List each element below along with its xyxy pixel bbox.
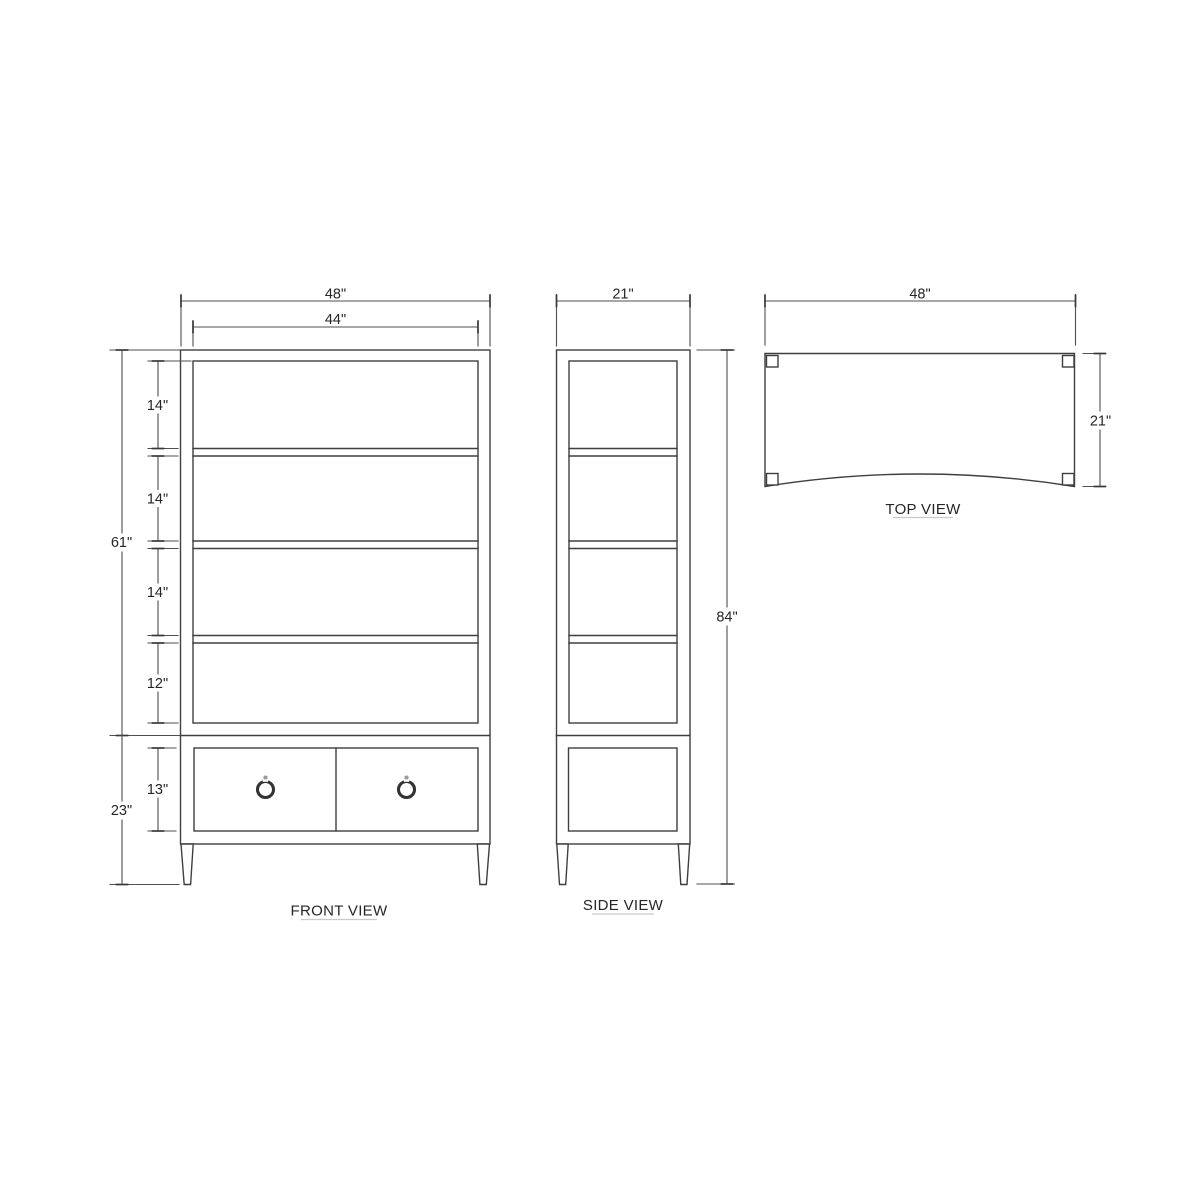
front-outer-frame: [181, 350, 491, 844]
dim-label-front-overall-width: 48": [325, 287, 346, 303]
drawer-pull-right-icon: [399, 776, 415, 798]
dim-label-front-shelf-4: 12": [147, 676, 168, 692]
dim-label-front-base-height: 23": [111, 803, 132, 819]
front-shelf-opening: [193, 361, 478, 723]
side-right-leg: [678, 844, 689, 885]
dim-label-front-shelf-2: 14": [147, 492, 168, 508]
top-view-dimensions: 48" 21": [765, 287, 1116, 487]
side-outer-frame: [557, 350, 691, 844]
front-left-leg: [181, 844, 193, 885]
dim-label-front-shelf-3: 14": [147, 585, 168, 601]
top-leg-post-bottom-right: [1063, 474, 1075, 486]
top-view-geometry: [765, 354, 1075, 487]
side-left-leg: [557, 844, 568, 885]
side-base-panel: [569, 748, 678, 831]
side-view-geometry: [557, 350, 691, 885]
dim-label-front-opening-width: 44": [325, 312, 346, 328]
front-right-leg: [477, 844, 489, 885]
top-leg-post-bottom-left: [767, 474, 779, 486]
top-view: 48" 21" TOP VIEW: [765, 287, 1116, 519]
top-outline-curved-front: [765, 354, 1075, 487]
dim-label-side-overall-height: 84": [716, 610, 737, 626]
dim-label-front-drawer-height: 13": [147, 782, 168, 798]
top-leg-post-top-right: [1063, 356, 1075, 368]
dim-label-front-shelf-1: 14": [147, 398, 168, 414]
front-view-label: FRONT VIEW: [291, 903, 388, 920]
front-view-geometry: [181, 350, 491, 885]
top-leg-post-top-left: [767, 356, 779, 368]
side-view-dimensions: 21" 84": [557, 287, 743, 885]
dim-label-top-depth: 21": [1090, 414, 1111, 430]
dim-label-front-upper-height: 61": [111, 535, 132, 551]
side-view: 21" 84" SIDE VIEW: [557, 287, 743, 915]
side-view-label: SIDE VIEW: [583, 897, 664, 914]
top-view-label: TOP VIEW: [885, 501, 961, 518]
drawing-canvas: 48" 44" 61": [0, 0, 1200, 1200]
dim-label-top-width: 48": [909, 287, 930, 303]
drawer-pull-left-icon: [258, 776, 274, 798]
front-view-dimensions: 48" 44" 61": [106, 287, 490, 885]
dim-label-side-depth: 21": [612, 287, 633, 303]
front-view: 48" 44" 61": [106, 287, 490, 920]
side-shelf-opening: [569, 361, 677, 723]
technical-drawing: 48" 44" 61": [0, 0, 1200, 1200]
